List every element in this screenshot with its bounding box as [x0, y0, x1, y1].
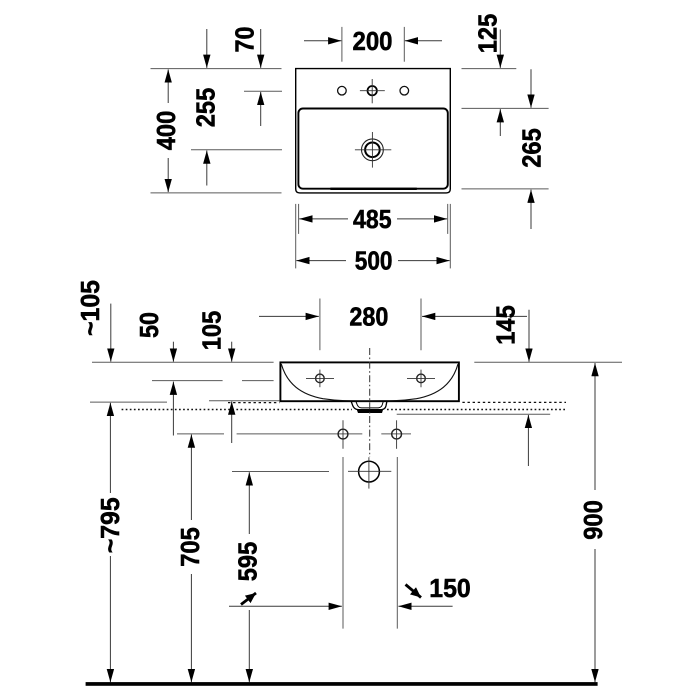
svg-text:200: 200	[353, 26, 393, 56]
svg-text:145: 145	[491, 305, 521, 345]
svg-text:~105: ~105	[75, 280, 105, 336]
svg-text:705: 705	[175, 527, 205, 567]
svg-text:~795: ~795	[95, 497, 125, 553]
svg-text:280: 280	[349, 301, 388, 331]
svg-text:485: 485	[353, 204, 392, 234]
svg-text:500: 500	[355, 246, 393, 276]
svg-text:595: 595	[233, 542, 263, 582]
svg-text:70: 70	[229, 27, 259, 53]
svg-text:900: 900	[578, 500, 608, 540]
svg-text:125: 125	[473, 14, 503, 54]
svg-text:265: 265	[517, 128, 547, 168]
svg-text:150: 150	[429, 573, 471, 603]
svg-text:400: 400	[151, 111, 181, 151]
svg-text:255: 255	[190, 88, 220, 128]
svg-text:105: 105	[196, 311, 226, 351]
svg-text:50: 50	[134, 312, 164, 338]
